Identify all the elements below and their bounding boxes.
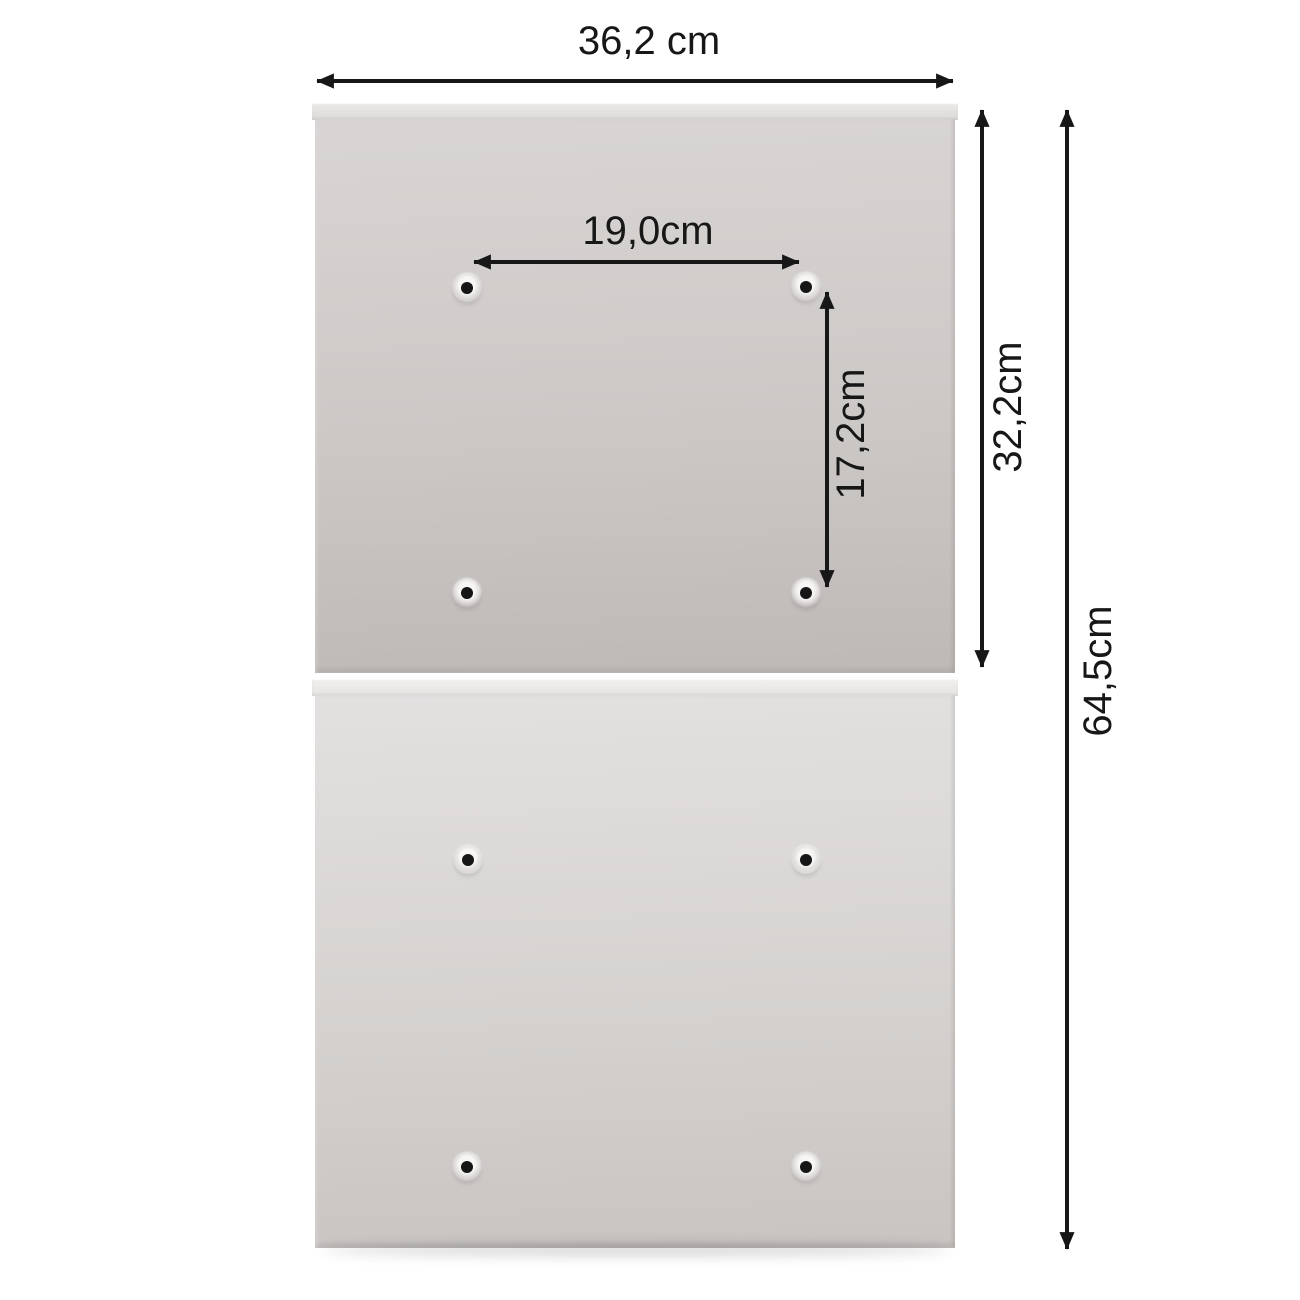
upper-panel-height-label: 32,2cm [985, 341, 1031, 472]
product-dimension-diagram: 36,2 cm 19,0cm 17,2cm 32,2cm 64,5cm [0, 0, 1300, 1300]
overall-height-label: 64,5cm [1075, 605, 1121, 736]
hole-spacing-vertical-label: 17,2cm [828, 368, 874, 499]
overall-width-label: 36,2 cm [578, 18, 720, 64]
hole-spacing-horizontal-label: 19,0cm [582, 208, 713, 254]
